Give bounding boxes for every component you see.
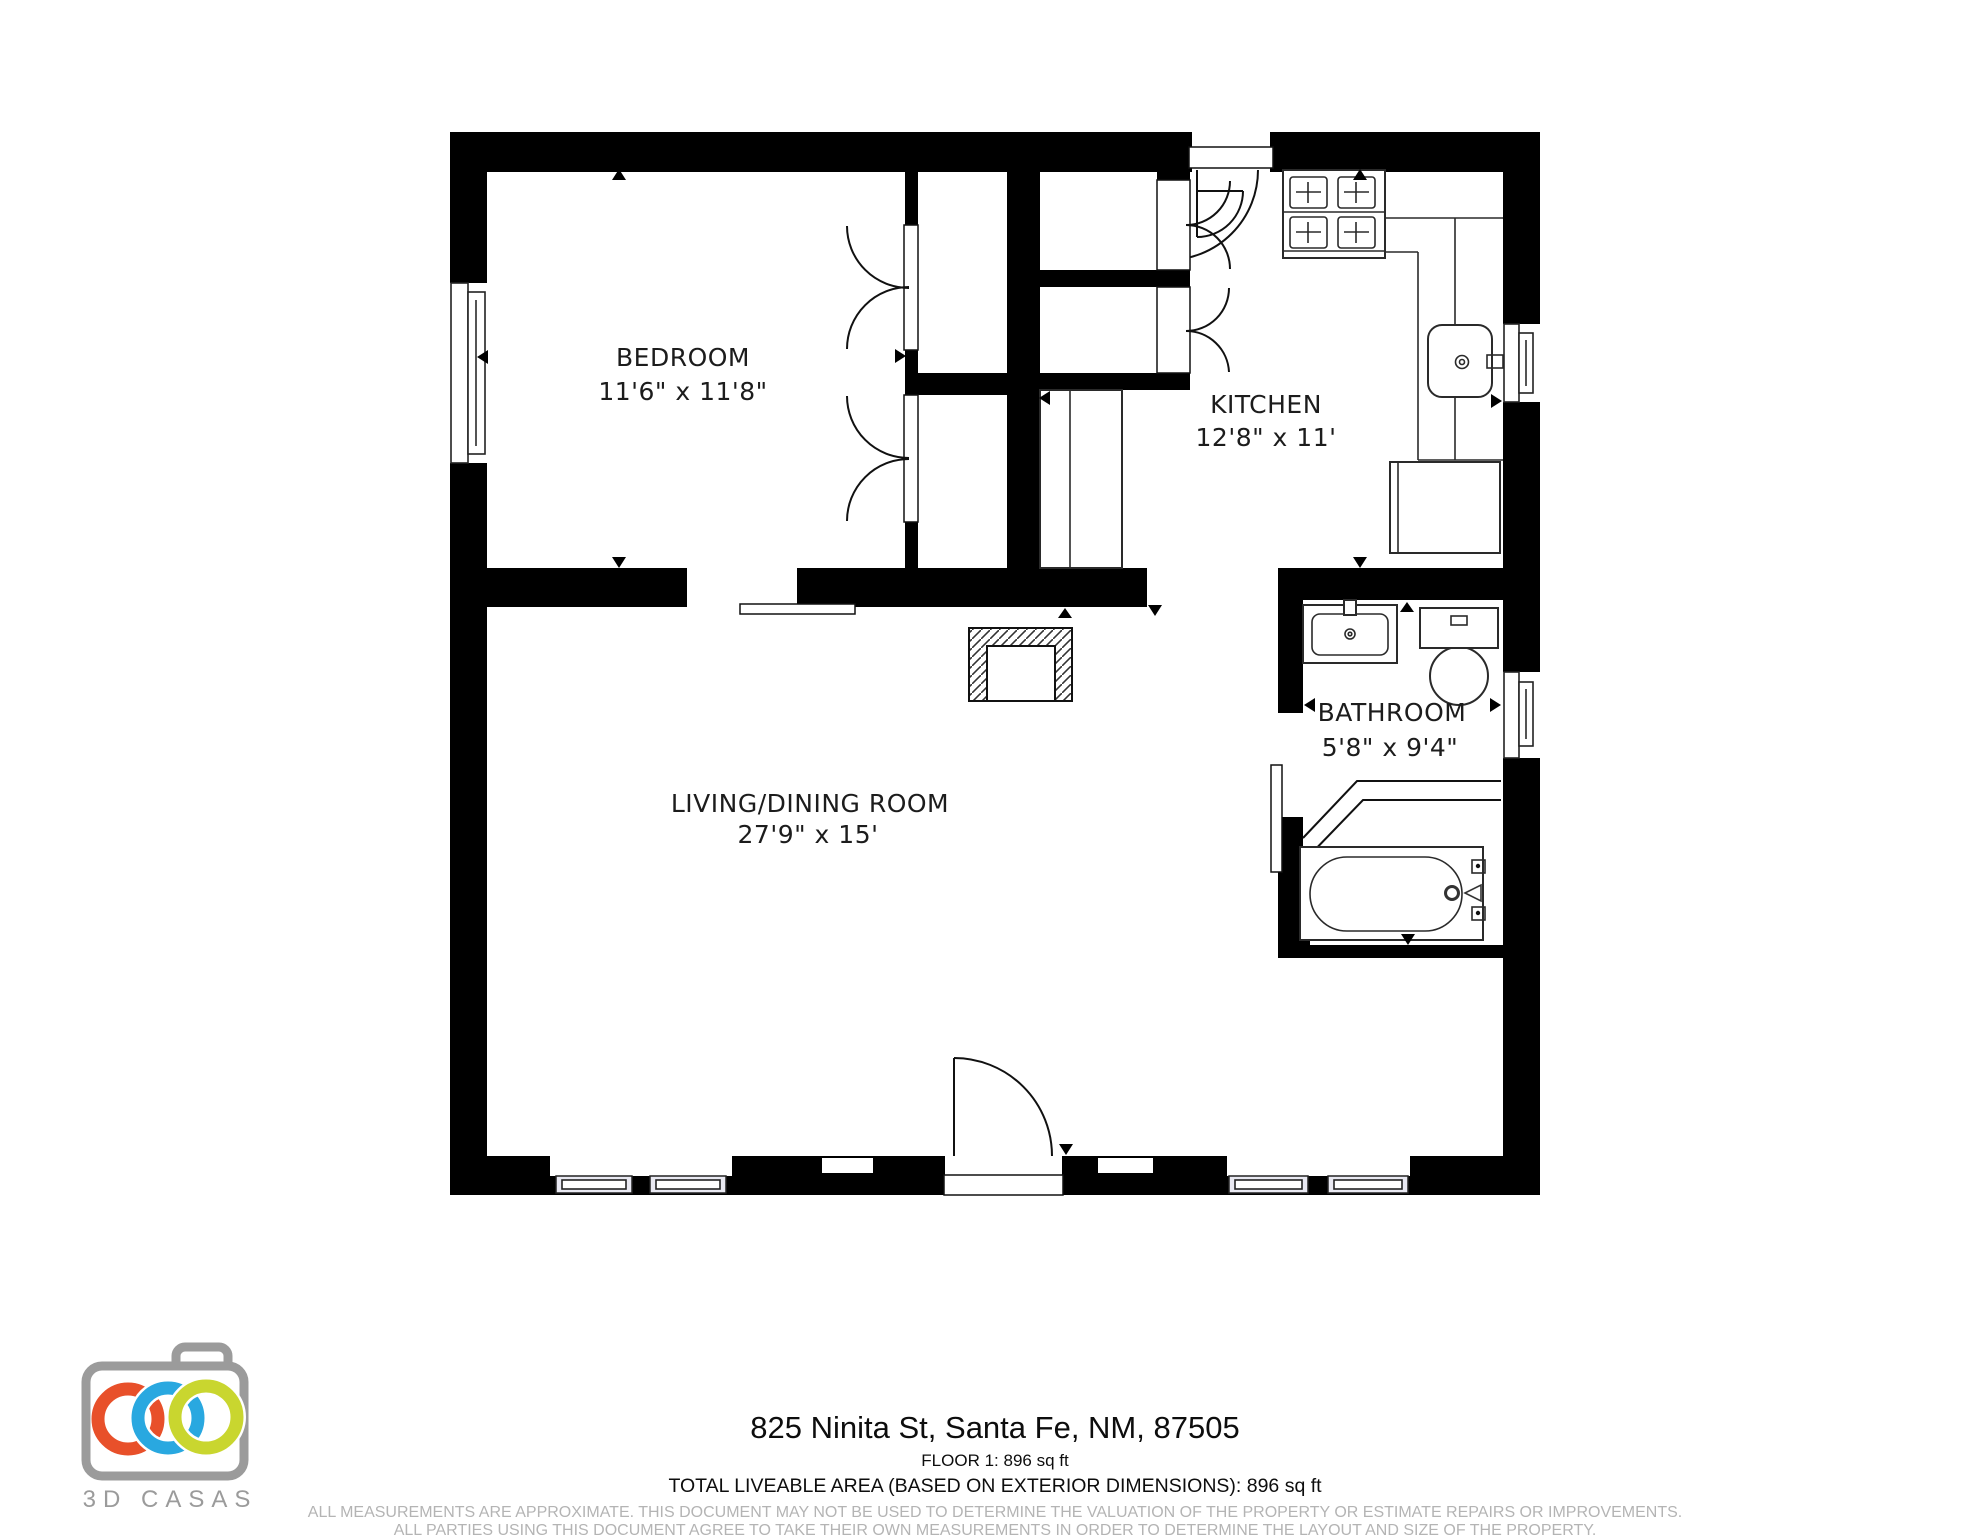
marker-up-passage: [1058, 608, 1072, 618]
marker-down-frontdoor: [1059, 1144, 1073, 1155]
marker-up-bathroom: [1400, 602, 1414, 612]
footer: 825 Ninita St, Santa Fe, NM, 87505 FLOOR…: [308, 1410, 1682, 1536]
property-address: 825 Ninita St, Santa Fe, NM, 87505: [750, 1410, 1239, 1445]
bedroom-label: BEDROOM: [616, 343, 750, 372]
bedroom-window: [451, 283, 485, 463]
bathroom-sliding-door: [1271, 765, 1282, 872]
bathtub: [1300, 847, 1485, 940]
marker-down-bedroom: [612, 557, 626, 568]
kitchen-dimensions: 12'8" x 11': [1196, 423, 1337, 452]
pantry-cabinet: [1040, 390, 1122, 568]
company-logo: 3D CASAS: [83, 1347, 258, 1513]
refrigerator: [1390, 462, 1500, 553]
bathroom-window: [1504, 672, 1533, 758]
floor-plan-document: BEDROOM 11'6" x 11'8" KITCHEN 12'8" x 11…: [0, 0, 1987, 1536]
living-dining-dimensions: 27'9" x 15': [738, 820, 879, 849]
front-door: [944, 1058, 1063, 1195]
bedroom-sliding-door: [740, 604, 855, 614]
kitchen-label: KITCHEN: [1210, 390, 1322, 419]
marker-right-bathroom: [1490, 698, 1501, 712]
bedroom-dimensions: 11'6" x 11'8": [598, 377, 767, 406]
marker-down-kitchen: [1353, 557, 1367, 568]
bathroom-sink: [1303, 600, 1397, 663]
marker-left-bathroom: [1304, 698, 1315, 712]
marker-down-passage: [1148, 605, 1162, 616]
logo-text: 3D CASAS: [83, 1486, 258, 1513]
disclaimer-line-2: ALL PARTIES USING THIS DOCUMENT AGREE TO…: [394, 1522, 1597, 1536]
kitchen-sink: [1428, 325, 1503, 397]
fireplace: [969, 628, 1072, 701]
marker-right-closet: [895, 349, 906, 363]
floor-area-info: FLOOR 1: 896 sq ft: [921, 1451, 1069, 1470]
stove: [1283, 170, 1385, 258]
living-dining-label: LIVING/DINING ROOM: [671, 789, 949, 818]
disclaimer-line-1: ALL MEASUREMENTS ARE APPROXIMATE. THIS D…: [308, 1504, 1682, 1521]
marker-right-kitchen: [1491, 394, 1502, 408]
toilet: [1420, 608, 1498, 705]
camera-icon: [86, 1347, 244, 1476]
bathroom-dimensions: 5'8" x 9'4": [1322, 733, 1459, 762]
kitchen-window: [1504, 324, 1533, 402]
bathroom-label: BATHROOM: [1318, 698, 1467, 727]
interior-walls: [450, 162, 1503, 958]
total-liveable-area: TOTAL LIVEABLE AREA (BASED ON EXTERIOR D…: [668, 1475, 1322, 1497]
